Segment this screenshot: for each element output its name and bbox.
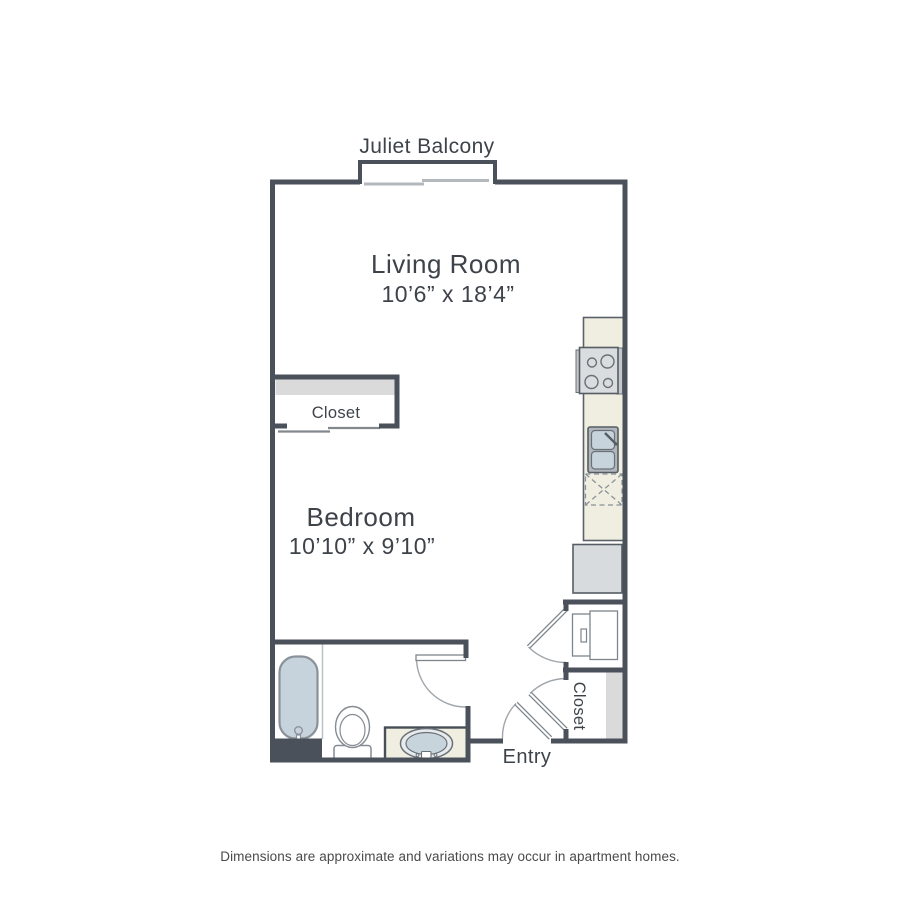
bathroom-door-arc — [417, 658, 466, 707]
entry-closet-label: Closet — [570, 682, 588, 731]
tub-foot-wall-block — [270, 739, 322, 762]
kitchen-sink-icon — [588, 427, 618, 473]
bedroom-closet-sliding-door — [278, 428, 380, 432]
living-room-dimensions: 10’6” x 18’4” — [381, 281, 514, 307]
bathroom-door-panel — [416, 655, 466, 661]
bathtub-icon — [280, 657, 318, 742]
entry-label: Entry — [503, 746, 552, 768]
laundry-closet-door-arc — [529, 647, 567, 663]
balcony-sliding-door — [364, 181, 489, 185]
entry-door-arc — [502, 704, 516, 739]
door-panels — [416, 608, 567, 739]
laundry-closet-door-panel — [527, 608, 567, 648]
floor-plan-image: Juliet Balcony Living Room 10’6” x 18’4”… — [0, 0, 900, 900]
dimensions-disclaimer: Dimensions are approximate and variation… — [220, 849, 680, 864]
refrigerator-icon — [573, 545, 622, 594]
entry-closet-door-arc — [530, 679, 566, 694]
entry-closet-shelf — [606, 673, 623, 740]
stove-icon — [576, 348, 623, 395]
washer-dryer-icon — [573, 611, 618, 660]
bedroom-name: Bedroom — [307, 502, 416, 532]
bedroom-closet-shelf — [276, 380, 395, 396]
balcony-label: Juliet Balcony — [359, 135, 494, 158]
bedroom-dimensions: 10’10” x 9’10” — [289, 533, 435, 559]
bedroom-closet-label: Closet — [312, 404, 361, 422]
vanity-sink-icon — [385, 728, 468, 761]
living-room-name: Living Room — [371, 249, 521, 279]
kitchen-area — [573, 318, 624, 594]
floor-plan-page: Juliet Balcony Living Room 10’6” x 18’4”… — [0, 0, 900, 900]
toilet-icon — [334, 707, 371, 762]
